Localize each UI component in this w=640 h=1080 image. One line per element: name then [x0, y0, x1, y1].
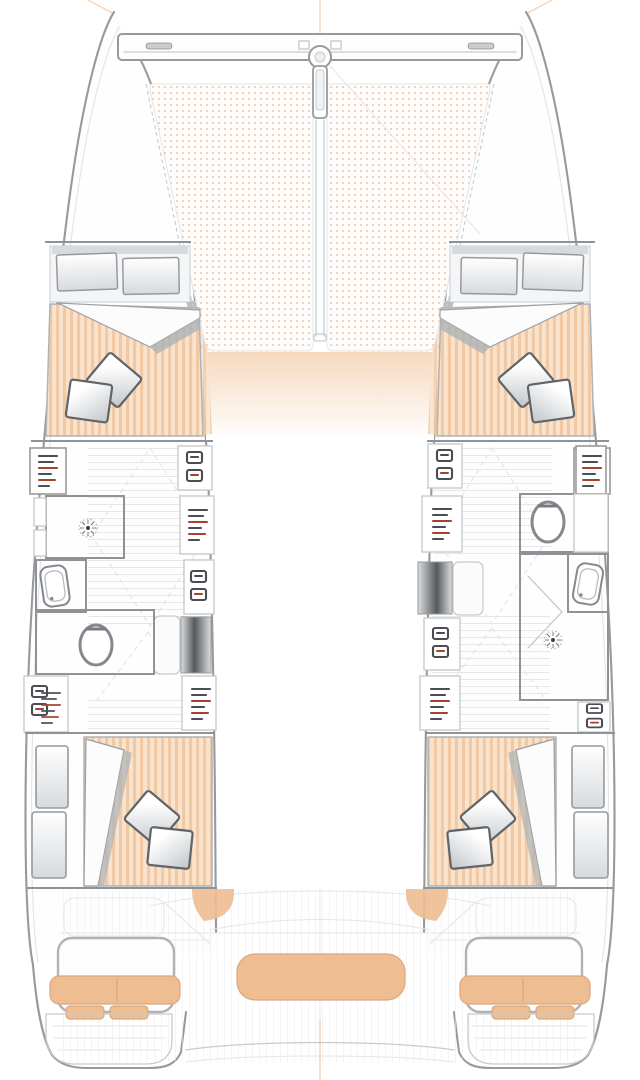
rigging-lines: [88, 0, 552, 34]
cleat-icon: [146, 43, 172, 49]
stern-bench-cushion: [237, 954, 405, 1000]
deck-plan-canvas: [0, 0, 640, 1080]
catamaran-floor-plan: [0, 0, 640, 1080]
toilet: [80, 625, 112, 665]
locker: [576, 446, 606, 496]
sink: [572, 562, 605, 606]
toilet: [532, 502, 564, 542]
locker: [422, 496, 462, 552]
cleat-icon: [468, 43, 494, 49]
locker: [424, 618, 460, 670]
locker: [420, 676, 460, 730]
foredeck-fade: [206, 352, 434, 440]
sink: [39, 564, 70, 607]
companionway-steps: [418, 562, 452, 614]
